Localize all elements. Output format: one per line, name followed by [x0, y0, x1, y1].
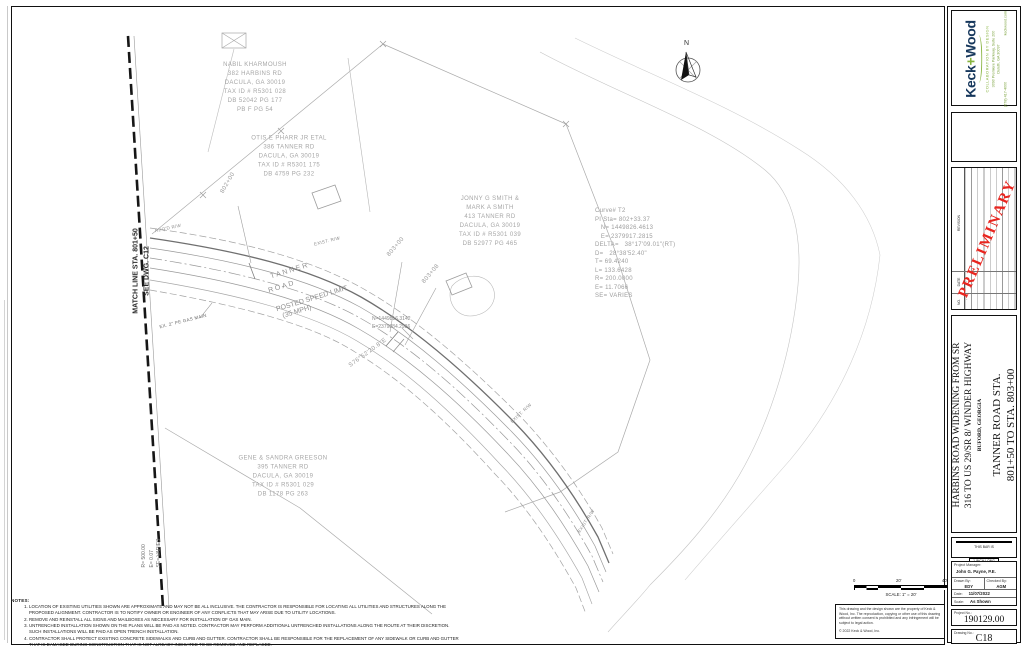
project-number-box: Project No.: 190129.00 — [951, 609, 1017, 626]
firm-logo: Keck+Wood COLLABORATION BY DESIGN 3090 P… — [962, 11, 1007, 107]
north-arrow-icon — [676, 52, 700, 82]
left-curve-note: R= 500.00 E= 0.07 SE= VARIES — [141, 539, 164, 568]
note-item: CONTRACTOR SHALL PROTECT EXISTING CONCRE… — [29, 636, 463, 648]
project-title-line1: HARBINS ROAD WIDENING FROM SR — [952, 317, 964, 533]
note-item: UNTRENCHED INSTALLATION SHOWN ON THE PLA… — [29, 623, 463, 635]
inch-bar-box: THIS BAR IS 1 INCH LONG PLOTTED FULL SCA… — [951, 537, 1017, 558]
sheet-title-line1: TANNER ROAD STA. — [990, 317, 1004, 533]
one-inch-bar — [956, 541, 1012, 544]
copyright-notice: © 2022 Keck & Wood, Inc. — [839, 629, 941, 633]
firm-phone: (678) 417-4000 — [1004, 82, 1008, 107]
scale-tick-0: 0 — [853, 578, 855, 583]
drawing-number-label: Drawing No.: — [954, 631, 974, 635]
coordinate-callout: N=1449816.3142 E=2379884.2936 — [372, 316, 411, 331]
firm-website: keckwood.com — [1004, 11, 1008, 35]
firm-address: 3090 Premiere Parkway, Suite 200 Duluth,… — [991, 11, 1001, 107]
parcel-label-greeson: GENE & SANDRA GREESON 395 TANNER RD DACU… — [238, 455, 327, 500]
scale-caption: SCALE: 1" = 20' — [848, 592, 954, 597]
checked-by-value: AGM — [987, 584, 1017, 589]
graphic-scale: 0 20' 40' SCALE: 1" = 20' — [848, 578, 958, 597]
date-value: 11/07/2022 — [969, 591, 990, 596]
copyright-box: This drawing and the design shown are th… — [835, 604, 945, 639]
copyright-text: This drawing and the design shown are th… — [839, 607, 941, 626]
project-number-label: Project No.: — [954, 611, 972, 615]
firm-tagline: COLLABORATION BY DESIGN — [984, 11, 989, 107]
parcel-label-smith: JONNY G SMITH & MARK A SMITH 413 TANNER … — [459, 195, 521, 249]
note-item: REMOVE AND REINSTALL ALL SIGNS AND MAILB… — [29, 617, 463, 623]
project-title: HARBINS ROAD WIDENING FROM SR 316 TO US … — [952, 317, 1018, 533]
revision-header-revision: REVISION — [957, 215, 961, 231]
scale-bar-graphic — [854, 585, 948, 590]
parcel-label-pharr: OTIS E PHARR JR ETAL 386 TANNER RD DACUL… — [251, 135, 327, 180]
north-label: N — [684, 40, 689, 47]
seal-box — [951, 112, 1017, 162]
checked-by-label: Checked By: — [987, 579, 1017, 583]
general-notes: NOTES: LOCATION OF EXISTING UTILITIES SH… — [11, 598, 463, 648]
drawn-by-value: EDY — [954, 584, 984, 589]
project-manager-value: John G. Payne, P.E. — [956, 569, 1014, 574]
project-location: BUFORD, GEORGIA — [977, 317, 983, 533]
notes-list: LOCATION OF EXISTING UTILITIES SHOWN ARE… — [21, 604, 463, 648]
curve-data-table: Curve# T2 PI Sta= 802+33.37 N= 1449826.4… — [595, 207, 675, 301]
drawn-by-label: Drawn By: — [954, 579, 984, 583]
sheet-info-box: Project Manager: John G. Payne, P.E. Dra… — [951, 561, 1017, 606]
drawing-number-box: Drawing No.: C18 — [951, 629, 1017, 644]
bar-text-1: THIS BAR IS — [952, 545, 1016, 550]
scale-tick-20: 20' — [896, 578, 901, 583]
sheet-title-line2: 801+50 TO STA. 803+00 — [1004, 317, 1018, 533]
parcel-label-kharmoush: NABIL KHARMOUSH 382 HARBINS RD DACULA, G… — [223, 61, 287, 115]
project-number-value: 190129.00 — [952, 615, 1016, 625]
project-title-box: HARBINS ROAD WIDENING FROM SR 316 TO US … — [951, 315, 1017, 533]
firm-logo-box: Keck+Wood COLLABORATION BY DESIGN 3090 P… — [951, 10, 1017, 106]
project-title-line2: 316 TO US 29/SR 8/ WINDER HIGHWAY — [964, 317, 976, 533]
match-line-label: MATCH LINE STA. 801+50 SEE DWG. C12 — [132, 228, 153, 314]
revision-header-no: NO. — [957, 299, 961, 305]
project-manager-label: Project Manager: — [954, 563, 1014, 567]
notes-title: NOTES: — [11, 598, 463, 603]
scale-label: Scale: — [954, 600, 964, 604]
firm-logo-wordmark: Keck+Wood — [962, 11, 978, 107]
note-item: LOCATION OF EXISTING UTILITIES SHOWN ARE… — [29, 604, 463, 616]
date-label: Date: — [954, 592, 963, 596]
scale-value: As Shown — [970, 599, 991, 604]
plan-sheet: MATCH LINE STA. 801+50 SEE DWG. C12 NABI… — [0, 0, 1024, 648]
